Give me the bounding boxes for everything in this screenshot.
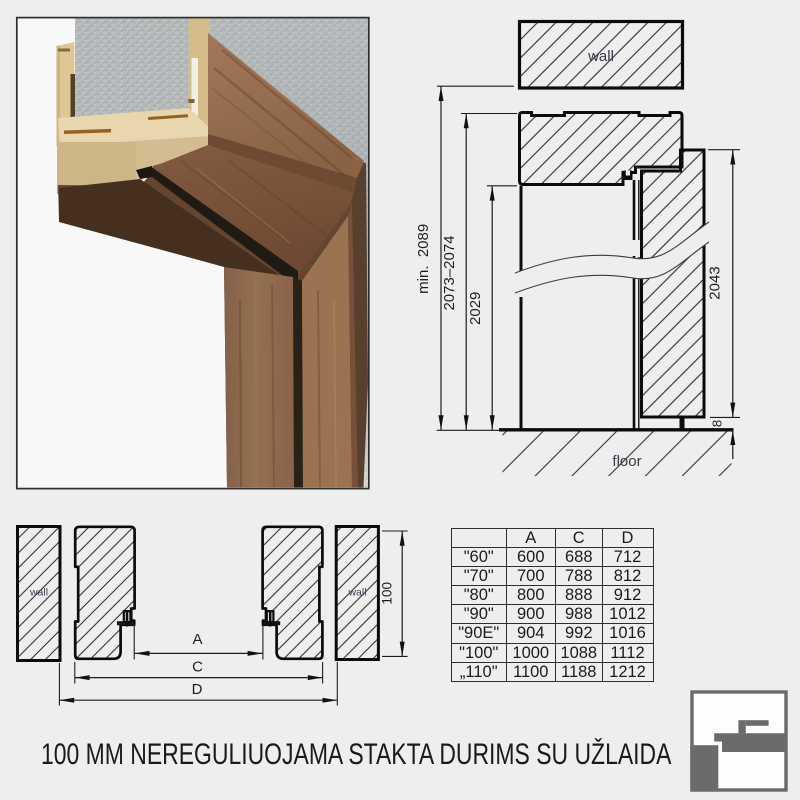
svg-text:A: A [192,631,202,648]
svg-text:min. 2089: min. 2089 [415,224,432,294]
svg-text:wall: wall [29,587,48,599]
svg-text:8: 8 [709,420,724,427]
svg-text:D: D [192,681,203,698]
svg-text:floor: floor [612,453,641,470]
svg-text:2073–2074: 2073–2074 [441,235,458,310]
svg-text:2043: 2043 [707,266,724,299]
svg-text:wall: wall [347,587,366,599]
svg-text:100: 100 [379,582,394,605]
svg-text:2029: 2029 [467,292,484,325]
svg-text:wall: wall [587,48,614,65]
svg-text:C: C [192,659,203,676]
